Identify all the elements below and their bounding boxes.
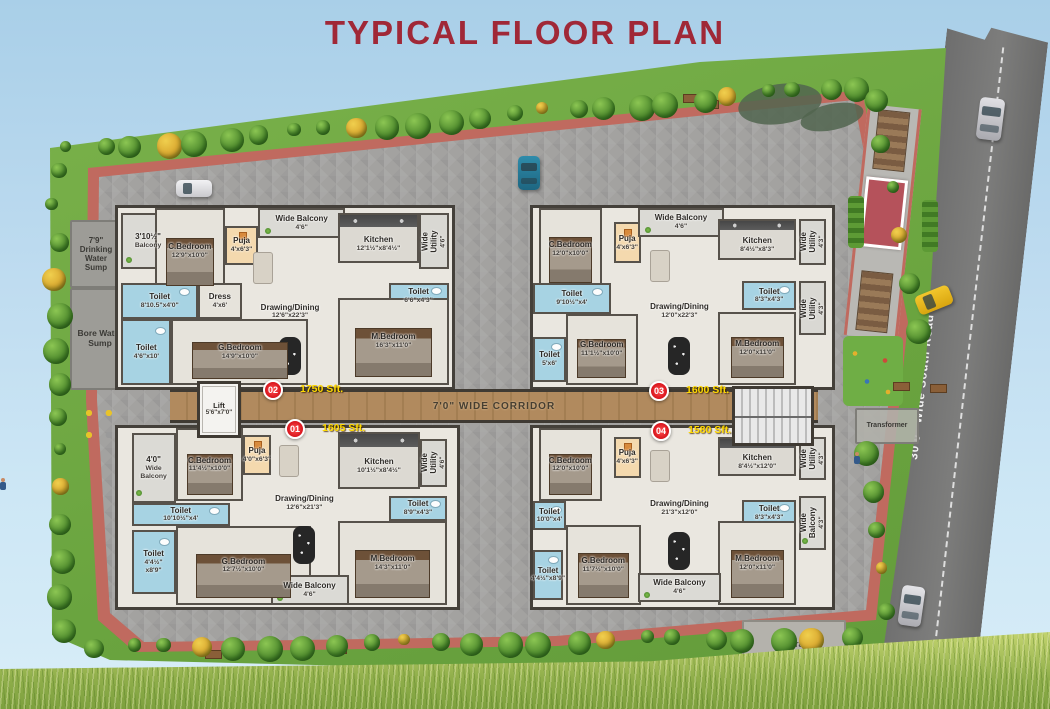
room-dimensions: 8'3"x4'3" [755,296,784,303]
bush [652,92,678,118]
room-label: Drawing/Dining12'6"x22'3" [261,304,320,320]
room-dimensions: 10'10½"x4' [163,515,198,522]
bush [118,136,140,158]
room-label: Wide Balcony4'6" [275,215,327,231]
room-label: Wide Utility4'6" [421,451,446,474]
room-name: Wide Utility [800,447,818,470]
room-name: M.Bedroom [735,555,779,564]
room-dimensions: Wide Balcony [134,465,174,480]
room-dimensions: 11'4½"x10'0" [189,465,230,472]
room-01-kitchen: Kitchen10'1½"x8'4½" [338,432,419,489]
room-dimensions: 4'0"x6'3" [243,456,272,463]
room-dimensions: 4'x6'3" [616,458,638,465]
room-01-4-0: 4'0"Wide Balcony [132,433,176,503]
bush [156,638,170,652]
staircase [732,386,814,446]
bush [525,632,551,658]
room-03-wide-utility: Wide Utility4'3" [799,281,826,335]
room-label: Kitchen8'4½"x8'3" [740,237,774,253]
room-name: Toilet [149,293,170,302]
room-dimensions: 6'6"x4'3" [404,297,433,304]
bush [460,633,483,656]
bush [54,443,66,455]
car-on-road-top [976,97,1006,142]
unit-01: 4'0"Wide BalconyC.Bedroom11'4½"x10'0"Puj… [115,425,460,610]
room-04-toilet: Toilet4'4½"x8'9" [533,550,563,600]
room-label: C.Bedroom12'0"x10'0" [549,457,592,473]
room-name: Puja [249,447,266,456]
room-label: Dress4'x6' [209,293,231,309]
bush [220,128,244,152]
yellow-tree [157,133,182,158]
parked-car-blue [518,156,540,190]
room-03-drawing-dining: Drawing/Dining12'0"x22'3" [641,237,719,386]
room-label: Toilet4'4½"x8'9" [531,567,565,583]
room-dimensions: 4'6" [438,457,445,469]
room-dimensions: 8'4½"x8'3" [740,246,774,253]
room-02-toilet: Toilet4'6"x10' [121,319,171,385]
room-dimensions: 4'6" [303,591,315,598]
room-dimensions: 4'x6' [213,302,228,309]
room-label: 4'0"Wide Balcony [134,456,174,480]
room-dimensions: 12'0"x11'0" [739,349,775,356]
room-label: M.Bedroom16'3"x11'0" [372,333,416,349]
unit-number-badge-01: 01 [285,419,305,439]
bench [893,382,910,391]
room-dimensions: 8'10.5"x4'0" [141,302,179,309]
room-name: C.Bedroom [168,243,211,252]
room-label: Wide Utility4'3" [800,447,825,470]
bush [326,635,348,657]
room-name: Kitchen [364,458,393,467]
room-dimensions: 4'4½"x8'9" [531,575,565,582]
room-name: Wide Utility [800,297,818,320]
room-label: Drawing/Dining12'0"x22'3" [650,303,709,319]
unit-number-badge-02: 02 [263,380,283,400]
bush [364,634,380,650]
room-name: Toilet [759,505,780,514]
lift-dims: 5'6"x7'0" [206,410,232,417]
room-name: M.Bedroom [372,333,416,342]
room-dimensions: 12'7½"x10'0" [223,566,265,573]
room-name: 3'10½" [135,233,161,242]
room-label: Puja4'0"x6'3" [243,447,272,463]
room-name: Toilet [143,550,164,559]
room-label: Kitchen12'1½"x8'4½" [357,236,401,252]
room-label: Puja4'x6'3" [231,237,253,253]
room-label: Puja4'x6'3" [616,235,638,251]
room-03-puja: Puja4'x6'3" [614,222,641,263]
yellow-tree [718,87,737,106]
yellow-tree [596,631,615,650]
room-label: Toilet8'10.5"x4'0" [141,293,179,309]
bush [868,522,885,539]
room-label: Kitchen10'1½"x8'4½" [357,458,401,474]
room-dimensions: 4'3" [818,236,825,248]
room-label: 3'10½"Balcony [135,233,161,249]
bush [694,90,717,113]
room-name: Puja [619,449,636,458]
bush [47,303,73,329]
room-label: Drawing/Dining12'6"x21'3" [275,495,334,511]
room-dimensions: 11'1½"x10'0" [581,350,622,357]
room-dimensions: 12'0"x10'0" [552,250,588,257]
room-label: G.Bedroom14'9"x10'0" [218,344,262,360]
room-01-toilet: Toilet4'4½" x8'9" [132,530,176,594]
room-04-drawing-dining: Drawing/Dining21'3"x12'0" [641,437,719,580]
room-name: C.Bedroom [549,241,592,250]
unit-area-label-03: 1600 Sft. [686,384,729,396]
room-label: Toilet5'x6' [539,351,560,367]
bush [316,120,331,135]
room-02-m-bedroom: M.Bedroom16'3"x11'0" [338,298,448,386]
corridor-label: 7'0" WIDE CORRIDOR [433,401,555,412]
room-dimensions: 12'6"x21'3" [286,504,322,511]
entrance-steps-lower [855,270,893,333]
room-dimensions: 14'3"x11'0" [375,564,411,571]
room-label: G.Bedroom12'7½"x10'0" [222,558,266,574]
room-01-toilet: Toilet8'9"x4'3" [389,496,447,521]
room-name: Drawing/Dining [650,500,709,509]
room-03-wide-balcony: Wide Balcony4'6" [638,208,725,237]
unit-number-badge-03: 03 [649,381,669,401]
room-03-m-bedroom: M.Bedroom12'0"x11'0" [718,312,796,385]
room-name: Toilet [408,288,429,297]
page-title: TYPICAL FLOOR PLAN [0,14,1050,52]
room-dimensions: 4'4½" x8'9" [145,559,163,574]
room-dimensions: 4'6"x10' [134,353,159,360]
room-label: C.Bedroom11'4½"x10'0" [188,457,231,473]
person [0,478,6,490]
floor-plan-canvas: TYPICAL FLOOR PLAN 30'0" Wide South Road… [0,0,1050,709]
room-label: C.Bedroom12'9"x10'0" [168,243,211,259]
room-dimensions: 8'4½"x12'0" [738,463,776,470]
room-label: C.Bedroom12'0"x10'0" [549,241,592,257]
room-label: Wide Balcony4'6" [655,214,707,230]
room-01-wide-utility: Wide Utility4'6" [420,439,447,487]
room-label: Toilet6'6"x4'3" [404,288,433,304]
room-label: Wide Utility4'6" [421,228,446,254]
room-label: Toilet10'10½"x4' [163,507,198,523]
room-dimensions: 4'6" [673,588,685,595]
yellow-tree [52,478,68,494]
room-dimensions: 14'9"x10'0" [222,353,258,360]
room-03-toilet: Toilet8'3"x4'3" [742,281,796,310]
yellow-tree [876,562,888,574]
room-label: Wide Balcony4'3" [800,507,825,538]
bush [43,338,69,364]
room-03-toilet: Toilet9'10½"x4' [533,283,611,313]
room-01-toilet: Toilet10'10½"x4' [132,503,230,526]
room-dimensions: 4'6" [295,224,307,231]
room-03-wide-utility: Wide Utility4'3" [799,219,826,266]
room-02-kitchen: Kitchen12'1½"x8'4½" [338,213,418,263]
room-dimensions: 12'6"x22'3" [272,312,308,319]
room-04-g-bedroom: G.Bedroom11'7½"x10'0" [566,525,641,606]
bush [51,163,67,179]
room-01-puja: Puja4'0"x6'3" [243,435,270,474]
room-name: M.Bedroom [371,555,415,564]
room-name: Kitchen [364,236,393,245]
room-03-c-bedroom: C.Bedroom12'0"x10'0" [539,208,602,290]
room-label: Kitchen8'4½"x12'0" [738,454,776,470]
room-dimensions: 4'3" [818,302,825,314]
room-name: Wide Balcony [283,582,335,591]
room-01-c-bedroom: C.Bedroom11'4½"x10'0" [176,428,244,501]
room-dimensions: 4'6" [675,223,687,230]
bush [405,113,431,139]
yellow-tree [42,268,65,291]
room-label: Wide Balcony4'6" [283,582,335,598]
room-label: Toilet8'9"x4'3" [404,500,433,516]
room-dimensions: 5'x6' [542,360,557,367]
children-play-area [843,336,903,406]
room-name: Toilet [136,344,157,353]
room-dimensions: 12'9"x10'0" [172,252,208,259]
room-label: Toilet4'4½" x8'9" [143,550,164,574]
room-dimensions: 12'0"x11'0" [739,564,775,571]
room-label: Wide Utility4'3" [800,297,825,320]
room-dimensions: 9'10½"x4' [556,299,587,306]
room-label: Toilet8'3"x4'3" [755,505,784,521]
bush [568,631,591,654]
bush [50,549,75,574]
room-name: Drawing/Dining [650,303,709,312]
unit-03: C.Bedroom12'0"x10'0"Puja4'x6'3"Wide Balc… [530,205,835,390]
room-name: Toilet [408,500,429,509]
room-name: Kitchen [743,454,772,463]
room-label: Drawing/Dining21'3"x12'0" [650,500,709,516]
room-label: M.Bedroom12'0"x11'0" [735,555,779,571]
room-label: Toilet4'6"x10' [134,344,159,360]
bush [762,84,775,97]
unit-area-label-04: 1580 Sft. [688,424,731,436]
bush [887,181,899,193]
hedge [922,200,938,252]
room-02-c-bedroom: C.Bedroom12'9"x10'0" [155,208,225,294]
bench [930,384,947,393]
room-name: Toilet [539,351,560,360]
room-label: Wide Utility4'3" [800,231,825,254]
room-dimensions: 12'1½"x8'4½" [357,245,401,252]
lift: Lift 5'6"x7'0" [197,381,241,438]
bush [507,105,523,121]
unit-number-badge-04: 04 [651,421,671,441]
bush [871,135,889,153]
transformer-pad: Transformer [855,408,919,444]
bush [664,629,679,644]
parked-car [176,180,212,197]
room-03-toilet: Toilet5'x6' [533,337,566,382]
bush [706,629,727,650]
yellow-tree [536,102,548,114]
bush [375,115,399,139]
bush [865,89,888,112]
room-01-m-bedroom: M.Bedroom14'3"x11'0" [338,521,446,605]
bush [629,95,655,121]
room-dimensions: Balcony [135,242,161,249]
bush [439,110,464,135]
bush [906,319,931,344]
unit-area-label-01: 1605 Sft. [322,422,365,434]
room-dimensions: 4'3" [818,452,825,464]
room-04-toilet: Toilet10'0"x4' [533,501,566,530]
room-02-dress: Dress4'x6' [198,283,241,319]
bush [290,636,315,661]
room-dimensions: 10'1½"x8'4½" [357,467,401,474]
room-dimensions: 10'0"x4' [537,516,562,523]
room-name: Wide Utility [800,231,818,254]
room-label: M.Bedroom14'3"x11'0" [371,555,415,571]
room-name: Puja [619,235,636,244]
room-04-wide-balcony: Wide Balcony4'6" [638,573,722,602]
room-04-wide-balcony: Wide Balcony4'3" [799,496,826,550]
room-label: G.Bedroom11'7½"x10'0" [581,557,625,573]
bush [60,141,71,152]
bush [49,514,71,536]
room-04-puja: Puja4'x6'3" [614,437,641,478]
room-name: Wide Balcony [655,214,707,223]
bush [45,198,58,211]
room-name: G.Bedroom [580,341,624,350]
room-label: Toilet8'3"x4'3" [755,288,784,304]
unit-04: C.Bedroom12'0"x10'0"Puja4'x6'3"Kitchen8'… [530,425,835,610]
room-dimensions: 8'9"x4'3" [404,509,433,516]
room-name: Wide Utility [421,228,439,254]
room-label: G.Bedroom11'1½"x10'0" [580,341,624,357]
room-dimensions: 11'7½"x10'0" [583,566,624,573]
bush [821,79,842,100]
room-dimensions: 8'3"x4'3" [755,514,784,521]
room-label: Toilet10'0"x4' [537,508,562,524]
bush [84,639,104,659]
room-name: Dress [209,293,231,302]
room-name: Wide Balcony [653,579,705,588]
room-02-wide-utility: Wide Utility4'6" [419,213,449,268]
room-name: Wide Balcony [275,215,327,224]
room-label: Toilet9'10½"x4' [556,290,587,306]
person [854,452,860,464]
unit-02: 3'10½"BalconyC.Bedroom12'9"x10'0"Puja4'x… [115,205,455,390]
room-04-m-bedroom: M.Bedroom12'0"x11'0" [718,521,796,605]
yellow-tree [346,118,366,138]
room-dimensions: 12'0"x22'3" [661,312,697,319]
room-label: Puja4'x6'3" [616,449,638,465]
room-name: Kitchen [743,237,772,246]
hedge [848,196,864,248]
room-label: Wide Balcony4'6" [653,579,705,595]
room-dimensions: 4'6" [439,235,446,247]
room-dimensions: 12'0"x10'0" [552,465,588,472]
bush [784,82,800,98]
room-name: 4'0" [146,456,161,465]
bush [570,100,588,118]
room-name: M.Bedroom [735,340,779,349]
bush [257,636,283,662]
room-name: Drawing/Dining [275,495,334,504]
unit-area-label-02: 1750 Sft. [300,383,343,395]
room-dimensions: 4'x6'3" [231,246,253,253]
room-03-g-bedroom: G.Bedroom11'1½"x10'0" [566,314,638,386]
bush [47,584,73,610]
room-dimensions: 4'x6'3" [616,244,638,251]
bush [249,125,268,144]
bush [641,630,654,643]
room-dimensions: 16'3"x11'0" [376,342,412,349]
room-03-kitchen: Kitchen8'4½"x8'3" [718,219,796,260]
room-02-toilet: Toilet8'10.5"x4'0" [121,283,198,319]
bush [181,131,207,157]
room-name: G.Bedroom [581,557,625,566]
bush [128,638,142,652]
room-name: G.Bedroom [218,344,262,353]
room-dimensions: 4'3" [818,517,825,529]
bush [50,233,69,252]
room-dimensions: 21'3"x12'0" [661,509,697,516]
room-04-c-bedroom: C.Bedroom12'0"x10'0" [539,428,602,501]
bush [498,632,524,658]
room-name: Puja [233,237,250,246]
room-name: Wide Utility [421,451,439,474]
room-name: Toilet [561,290,582,299]
room-label: M.Bedroom12'0"x11'0" [735,340,779,356]
room-02-wide-balcony: Wide Balcony4'6" [258,208,345,238]
room-name: Wide Balcony [800,507,818,538]
bush [469,108,491,130]
